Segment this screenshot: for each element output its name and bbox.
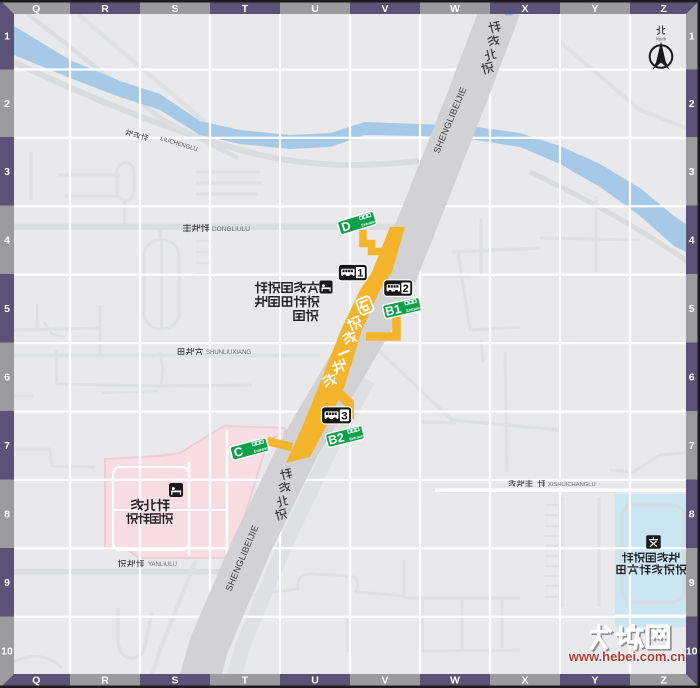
svg-text:X: X bbox=[521, 675, 528, 687]
svg-text:10: 10 bbox=[686, 646, 698, 658]
svg-text:6: 6 bbox=[4, 371, 10, 383]
svg-text:W: W bbox=[450, 675, 460, 687]
svg-text:North: North bbox=[656, 37, 667, 42]
svg-text:9: 9 bbox=[689, 577, 695, 589]
svg-text:3: 3 bbox=[4, 166, 10, 178]
svg-text:Q: Q bbox=[32, 3, 40, 15]
svg-text:S: S bbox=[171, 675, 178, 687]
svg-text:8: 8 bbox=[4, 509, 10, 521]
svg-text:Z: Z bbox=[660, 675, 667, 687]
svg-text:6: 6 bbox=[689, 371, 695, 383]
svg-text:2: 2 bbox=[403, 283, 409, 295]
svg-text:7: 7 bbox=[689, 440, 695, 452]
svg-text:YANLIULU: YANLIULU bbox=[148, 562, 177, 568]
svg-text:www.hebei.com.cn: www.hebei.com.cn bbox=[568, 649, 686, 664]
svg-text:4: 4 bbox=[4, 234, 10, 246]
svg-text:U: U bbox=[311, 3, 319, 15]
svg-text:DONGLIULU: DONGLIULU bbox=[212, 226, 250, 233]
svg-text:Y: Y bbox=[591, 3, 598, 15]
svg-text:9: 9 bbox=[4, 577, 10, 589]
svg-text:1: 1 bbox=[4, 31, 10, 43]
svg-text:XISHUICHANGLU: XISHUICHANGLU bbox=[548, 482, 596, 488]
svg-text:Y: Y bbox=[591, 675, 598, 687]
svg-text:T: T bbox=[242, 675, 249, 687]
svg-text:5: 5 bbox=[4, 303, 10, 315]
svg-text:3: 3 bbox=[341, 411, 347, 423]
svg-text:10: 10 bbox=[1, 646, 13, 658]
svg-text:3: 3 bbox=[689, 166, 695, 178]
svg-text:2: 2 bbox=[4, 98, 10, 110]
svg-text:T: T bbox=[242, 3, 249, 15]
svg-text:SHUNLIUXIANG: SHUNLIUXIANG bbox=[206, 350, 251, 356]
svg-text:R: R bbox=[101, 3, 109, 15]
svg-text:W: W bbox=[450, 3, 460, 15]
svg-text:Q: Q bbox=[32, 675, 40, 687]
svg-text:X: X bbox=[521, 3, 528, 15]
svg-text:1: 1 bbox=[357, 268, 363, 280]
svg-text:R: R bbox=[101, 675, 109, 687]
svg-text:4: 4 bbox=[689, 234, 695, 246]
svg-text:V: V bbox=[381, 675, 388, 687]
svg-text:U: U bbox=[311, 675, 319, 687]
svg-text:5: 5 bbox=[689, 303, 695, 315]
svg-text:Z: Z bbox=[660, 3, 667, 15]
svg-text:V: V bbox=[381, 3, 388, 15]
svg-text:8: 8 bbox=[689, 509, 695, 521]
svg-text:2: 2 bbox=[689, 98, 695, 110]
svg-text:S: S bbox=[171, 3, 178, 15]
svg-text:1: 1 bbox=[689, 31, 695, 43]
svg-text:7: 7 bbox=[4, 440, 10, 452]
